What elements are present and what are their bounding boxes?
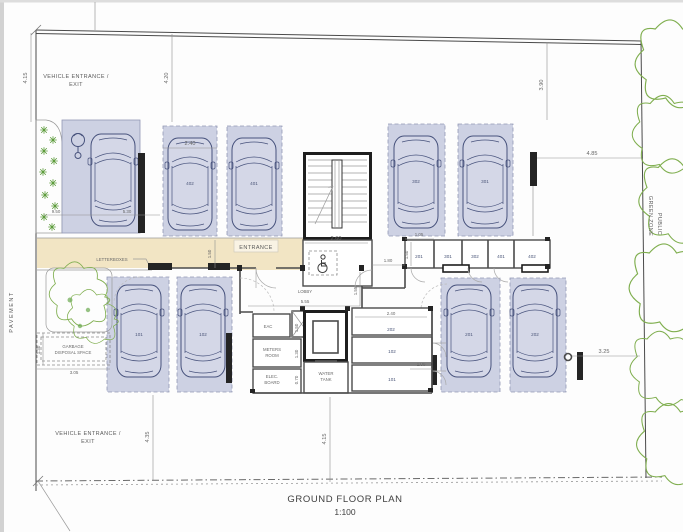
dim-garbage-depth: 1.30	[36, 345, 41, 354]
tree	[629, 244, 683, 332]
meters-label-1: METERS	[263, 347, 281, 352]
parking-label: 302	[412, 179, 420, 184]
lobby-label: LOBBY	[298, 289, 312, 294]
storage-label: 102	[388, 349, 396, 354]
tree	[630, 331, 683, 405]
parking-label: 401	[250, 181, 258, 186]
parking-label: 202	[531, 332, 539, 337]
public-green-zone-label-1: PUBLIC	[656, 213, 662, 235]
elec-label-2: BOARD	[264, 380, 279, 385]
water-tank-room: WATER TANK	[304, 362, 348, 393]
dim-site-mid: 4.20	[164, 73, 170, 84]
vehicle-exit-bottom-label: EXIT	[81, 439, 95, 445]
dim-eac-depth: 1.50	[294, 323, 299, 332]
entrance-door	[256, 268, 276, 288]
dim-storage-width: 1.05	[415, 232, 424, 237]
dim-meters-depth: 1.30	[294, 349, 299, 358]
parking-label: 402	[186, 181, 194, 186]
garbage-label-2: DISPOSAL SPACE	[55, 350, 92, 355]
floor-plan-drawing: 402 401 302 301 101 102 201 202	[0, 0, 683, 532]
floor-plan-page: 402 401 302 301 101 102 201 202	[0, 0, 683, 532]
plan-scale: 1:100	[334, 507, 356, 517]
pavement-label: PAVEMENT	[9, 291, 15, 332]
dim-drive-mid: 4.15	[322, 434, 328, 445]
dim-elec-depth: 0.70	[294, 375, 299, 384]
parking-label: 102	[199, 332, 207, 337]
car-102	[178, 285, 228, 377]
tree	[635, 20, 683, 108]
storage-label: 402	[528, 254, 536, 259]
planting-bed-bottom	[46, 262, 118, 344]
public-green-zone-label-2: GREEN ZONE	[647, 196, 653, 236]
parking-label: 201	[465, 332, 473, 337]
letterbox-unit	[148, 263, 172, 270]
storage-label: 301	[444, 254, 452, 259]
meters-label-2: ROOM	[265, 353, 279, 358]
dim-storage-center-width: 2.40	[387, 311, 396, 316]
accessible-wc-room	[303, 240, 372, 287]
parking-label: 101	[135, 332, 143, 337]
dim-aisle-b: 5.30	[123, 209, 132, 214]
elec-label-1: ELEC.	[266, 374, 278, 379]
storage-label: 101	[388, 377, 396, 382]
plan-title: GROUND FLOOR PLAN	[287, 494, 402, 505]
public-green-zone: PUBLIC GREEN ZONE	[629, 20, 683, 485]
elevator	[305, 312, 347, 362]
storage-right-row: 201 301 302 401 402	[405, 240, 550, 282]
parking-row-top: 402 401 302 301	[62, 120, 537, 236]
dim-stair-width: 2.60	[331, 236, 342, 242]
service-rooms: EAC METERS ROOM ELEC. BOARD	[253, 311, 311, 393]
dim-lobby-depth: 1.55	[353, 286, 358, 295]
staircase	[305, 154, 371, 239]
vehicle-entrance-top-label: VEHICLE ENTRANCE /	[43, 74, 109, 80]
dim-aisle-a: 9.50	[52, 209, 61, 214]
water-tank-label-1: WATER	[318, 371, 333, 376]
dim-site-right: 3.90	[539, 80, 545, 91]
letterboxes-label: LETTERBOXES	[96, 257, 127, 262]
vehicle-entrance-bottom-label: VEHICLE ENTRANCE /	[55, 431, 121, 437]
dim-east-gap: 3.25	[599, 349, 610, 355]
parking-label: 301	[481, 179, 489, 184]
car-101	[114, 285, 164, 377]
dim-site-left: 4.15	[23, 73, 29, 84]
dim-storage-depth: 1.50	[404, 250, 409, 259]
title-block: GROUND FLOOR PLAN 1:100	[287, 494, 402, 517]
letterbox-unit	[208, 263, 230, 270]
vehicle-exit-top-label: EXIT	[69, 82, 83, 88]
storage-label: 202	[387, 327, 395, 332]
car-201	[444, 285, 494, 377]
dim-walk: 1.50	[207, 249, 212, 258]
entrance-label: ENTRANCE	[234, 240, 278, 252]
storage-label: 401	[497, 254, 505, 259]
garbage-label-1: GARBAGE	[62, 344, 83, 349]
entrance-text: ENTRANCE	[239, 245, 272, 251]
planting-bed-top	[36, 120, 62, 233]
dim-door: 1.00	[417, 362, 426, 367]
water-tank-label-2: TANK	[320, 377, 331, 382]
garbage-disposal-space: GARBAGE DISPOSAL SPACE	[37, 333, 110, 365]
eac-label: EAC	[264, 324, 273, 329]
dim-lobby-width: 5.55	[301, 299, 310, 304]
storage-label: 201	[415, 254, 423, 259]
car-202	[510, 285, 560, 377]
dim-stall-width: 2.40	[185, 141, 196, 147]
dim-garbage-width: 3.05	[70, 370, 79, 375]
tree	[637, 404, 683, 485]
dim-east-setback: 4.85	[587, 151, 598, 157]
dim-drive-left: 4.35	[145, 432, 151, 443]
storage-label: 302	[471, 254, 479, 259]
dim-corridor: 1.80	[384, 258, 393, 263]
